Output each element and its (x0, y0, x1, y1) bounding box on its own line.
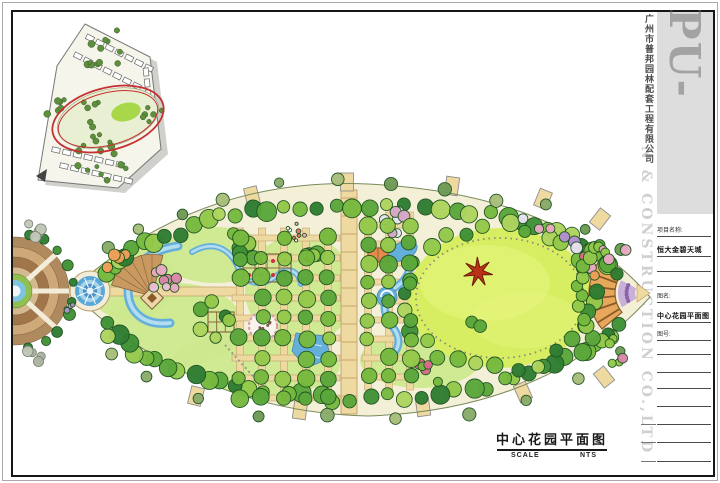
titleblock-row-blank (657, 342, 711, 355)
titleblock-row-blank (657, 274, 711, 287)
main-plan (0, 173, 650, 424)
titleblock-row-blank (657, 394, 711, 407)
inset-site-plan (36, 24, 171, 193)
scale-value: NTS (580, 452, 597, 459)
titleblock-row-blank (657, 449, 711, 462)
caption-scale-row: SCALE NTS (495, 452, 609, 459)
titleblock-stub-line (641, 424, 656, 425)
title-block: 项目名称:恒大金碧天城图名:中心花园平面图图号: (657, 222, 712, 472)
titleblock-row-blank (657, 376, 711, 389)
caption-underline (497, 449, 607, 451)
scale-label: SCALE (511, 452, 540, 459)
plan-svg (0, 0, 720, 483)
caption-title: 中心花园平面图 (495, 429, 609, 448)
drawing-sheet: PU-BANG 广州市普邦园林配套工程有限公司 N & CONSTRUCTION… (0, 0, 720, 483)
titleblock-row-blank (657, 360, 711, 373)
titleblock-row-blank (657, 412, 711, 425)
titleblock-stub-line (641, 461, 656, 462)
titleblock-row-value: 中心花园平面图 (657, 310, 711, 323)
titleblock-row-label: 项目名称: (657, 224, 711, 237)
titleblock-stub-line (641, 442, 656, 443)
titleblock-row-label: 图名: (657, 290, 711, 303)
titleblock-row-blank (657, 259, 711, 272)
titleblock-row-value: 恒大金碧天城 (657, 244, 711, 257)
titleblock-row-blank (657, 430, 711, 443)
titleblock-row-label: 图号: (657, 328, 711, 341)
drawing-caption: 中心花园平面图 SCALE NTS (495, 429, 609, 459)
